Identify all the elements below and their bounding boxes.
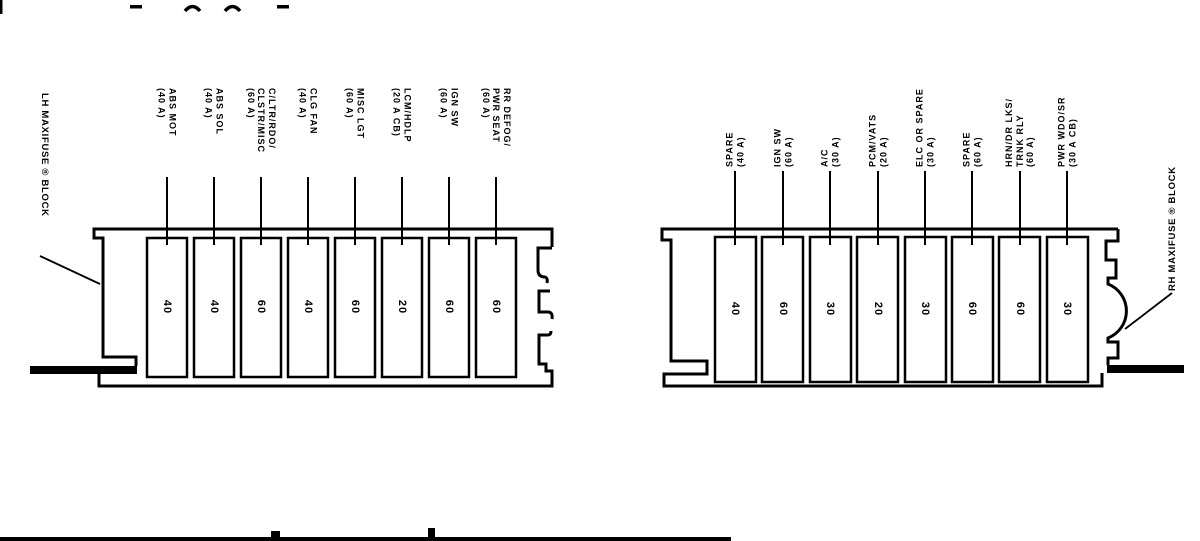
cut-off-fragment (130, 5, 142, 9)
cut-off-rule (0, 537, 731, 541)
fuse-amp-rating: 60 (443, 300, 455, 314)
cut-off-fragment (271, 531, 280, 537)
fuse-amp-rating: 30 (1061, 302, 1073, 316)
fuse-block-diagram: LH MAXIFUSE ® BLOCK RH MAXIFUSE ® BLOCK … (0, 0, 1200, 541)
fuse-amp-rating: 60 (777, 302, 789, 316)
fuse-amp-rating: 30 (919, 302, 931, 316)
fuse-amp-rating: 20 (872, 302, 884, 316)
cut-off-fragment (0, 0, 3, 14)
rh-block-leader-line (1125, 293, 1172, 329)
cut-off-fragment (185, 7, 200, 12)
lh-block-leader-line (40, 256, 100, 284)
fuse-amp-rating: 30 (824, 302, 836, 316)
fuse-amp-rating: 20 (396, 300, 408, 314)
diagram-canvas (0, 0, 1200, 541)
fuse-amp-rating: 40 (208, 300, 220, 314)
fuse-amp-rating: 40 (302, 300, 314, 314)
fuse-amp-rating: 40 (161, 300, 173, 314)
fuse-amp-rating: 60 (255, 300, 267, 314)
cut-off-fragment (277, 5, 289, 9)
fuse-amp-rating: 60 (966, 302, 978, 316)
fuse-amp-rating: 60 (349, 300, 361, 314)
lh-connector-bar (30, 366, 137, 374)
fuse-amp-rating: 60 (490, 300, 502, 314)
rh-connector-bar (1107, 365, 1184, 373)
fuse-amp-rating: 60 (1014, 302, 1026, 316)
cut-off-fragment (225, 7, 240, 12)
fuse-amp-rating: 40 (729, 302, 741, 316)
